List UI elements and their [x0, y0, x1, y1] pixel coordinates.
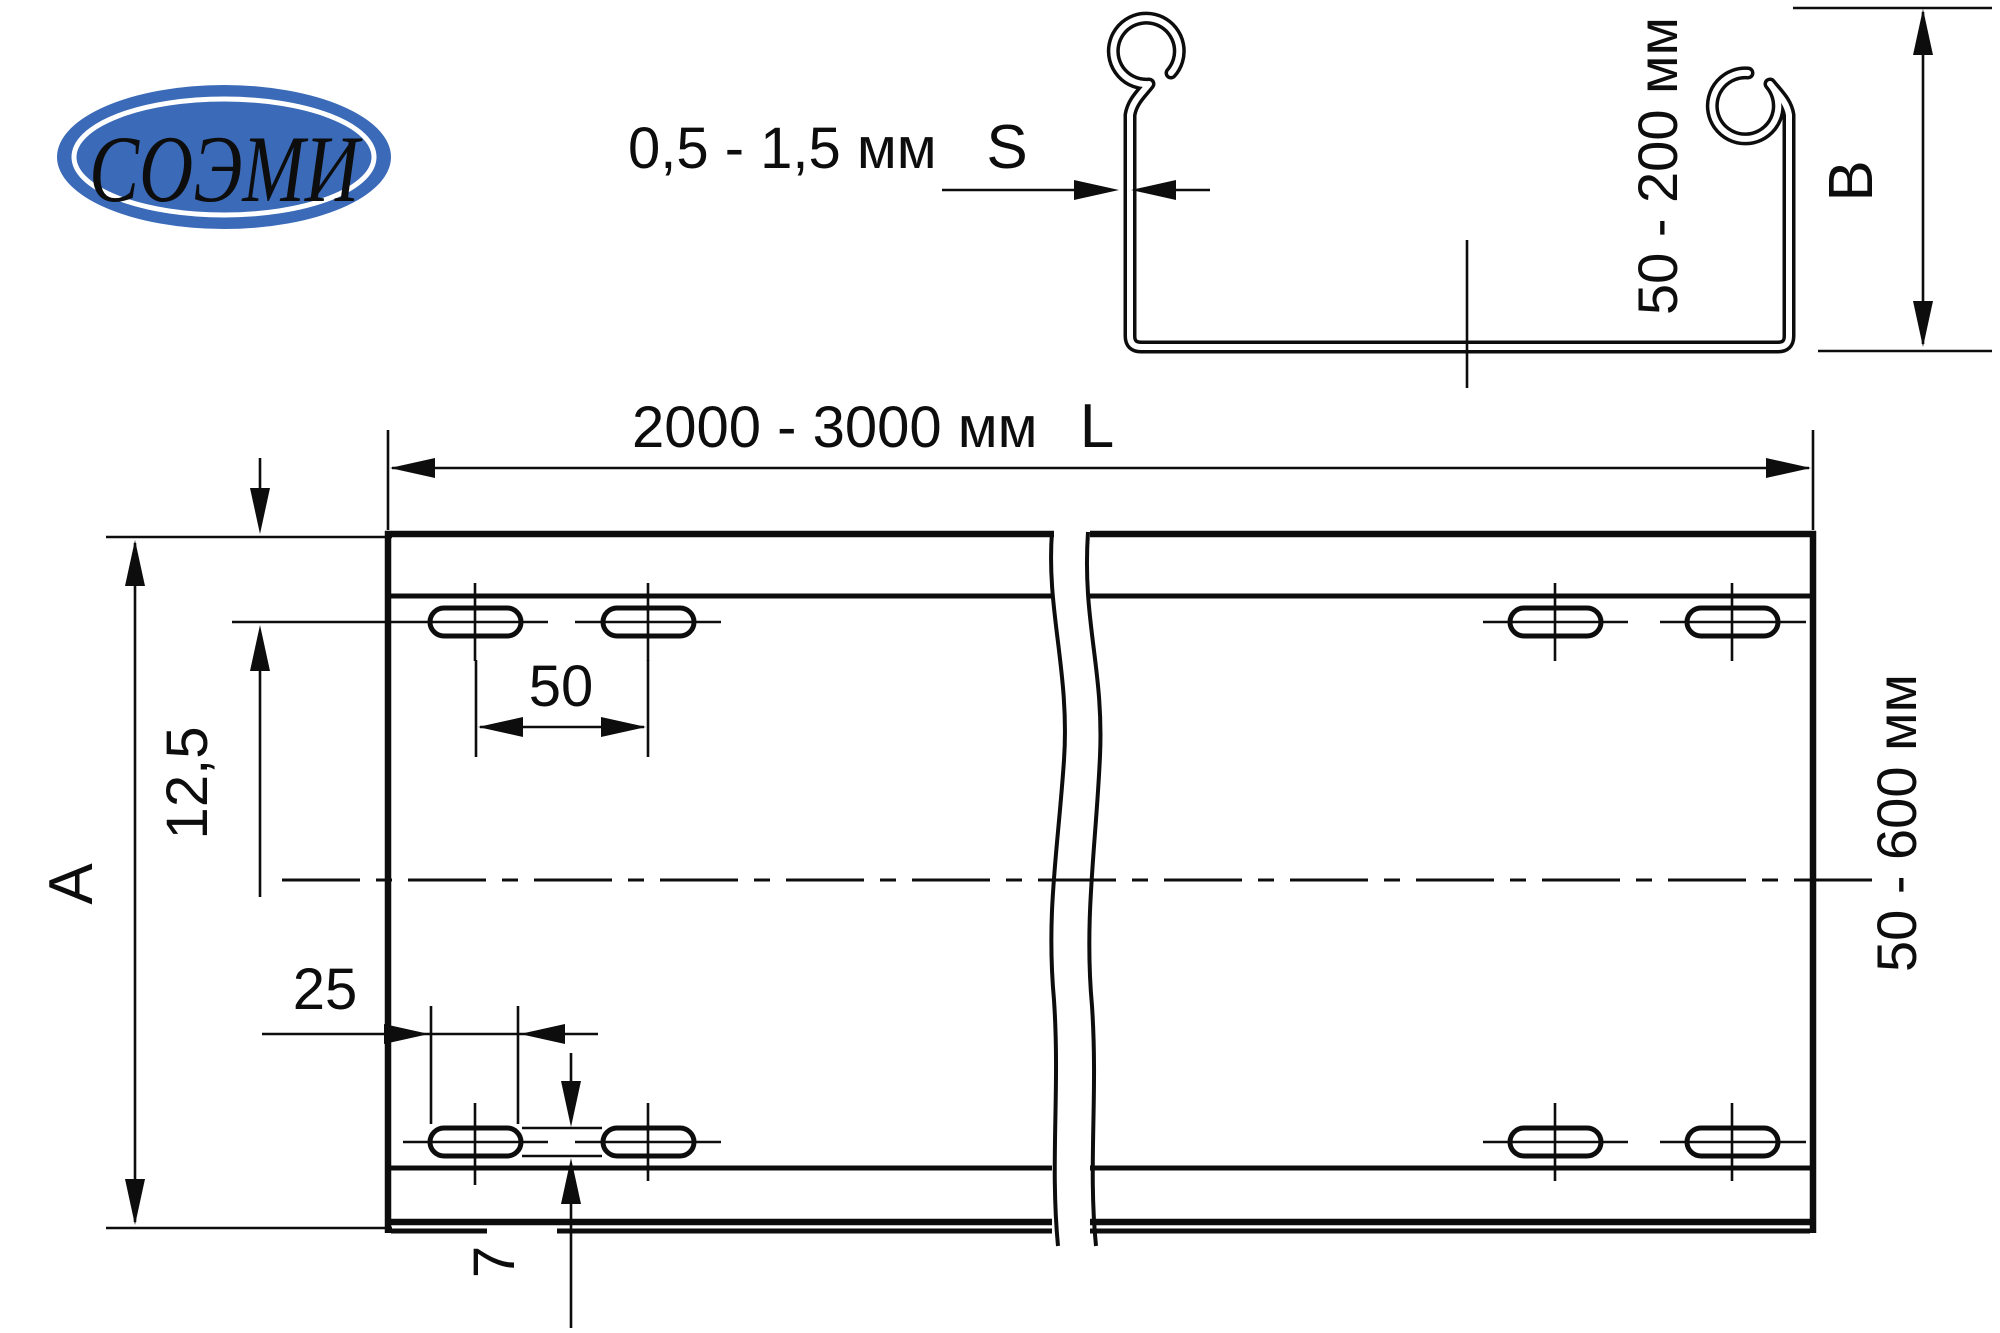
arrowhead-left — [1131, 180, 1176, 200]
dimension-slot-pitch: 50 — [476, 654, 648, 757]
dimension-section-height: 50 - 200 мм B — [1626, 8, 1992, 351]
break-line-right — [1087, 532, 1101, 1246]
arrowhead-left — [478, 717, 523, 737]
arrowhead-right — [1074, 180, 1119, 200]
arrowhead-down — [561, 1081, 581, 1127]
plan-view: 2000 - 3000 мм L A 12,5 50 — [37, 392, 1928, 1328]
company-logo: СОЭМИ — [57, 85, 391, 229]
arrowhead-right — [601, 717, 646, 737]
width-symbol-label: A — [37, 863, 106, 905]
arrowhead-up — [1913, 9, 1933, 55]
slot-length-label: 25 — [293, 957, 358, 1022]
dimension-thickness: 0,5 - 1,5 мм S — [628, 113, 1210, 200]
dimension-length: 2000 - 3000 мм L — [388, 392, 1813, 530]
dimension-width-A: A — [37, 537, 392, 1228]
arrowhead-left — [520, 1024, 565, 1044]
arrowhead-left — [390, 458, 435, 478]
arrowhead-down — [250, 488, 270, 534]
arrowhead-right — [1766, 458, 1811, 478]
dimension-edge-to-slots: 12,5 — [155, 458, 270, 897]
arrowhead-right — [384, 1024, 429, 1044]
arrowhead-up — [561, 1158, 581, 1204]
break-line-left — [1051, 532, 1065, 1246]
slot-width-label: 7 — [462, 1246, 527, 1278]
length-range-label: 2000 - 3000 мм — [632, 395, 1037, 460]
width-range-label: 50 - 600 мм — [1865, 674, 1928, 972]
arrowhead-down — [125, 1179, 145, 1225]
cross-section-view: 0,5 - 1,5 мм S 50 - 200 мм B — [628, 8, 1992, 388]
dimension-slot-length: 25 — [262, 957, 598, 1124]
slot-row-bottom — [403, 1103, 1806, 1185]
slot-pitch-label: 50 — [529, 654, 594, 719]
section-height-range-label: 50 - 200 мм — [1626, 17, 1689, 315]
dimension-slot-width: 7 — [462, 1053, 602, 1328]
arrowhead-up — [125, 540, 145, 586]
break-lines — [1051, 532, 1100, 1246]
thickness-symbol-label: S — [986, 113, 1027, 182]
arrowhead-down — [1913, 301, 1933, 347]
length-symbol-label: L — [1080, 392, 1114, 461]
technical-drawing: СОЭМИ 0,5 - 1,5 мм S 50 - 200 мм B — [0, 0, 2000, 1333]
edge-to-slots-label: 12,5 — [155, 727, 220, 840]
section-height-symbol-label: B — [1817, 160, 1886, 201]
logo-wordmark: СОЭМИ — [89, 116, 362, 222]
arrowhead-up — [250, 625, 270, 671]
drawing-page: СОЭМИ 0,5 - 1,5 мм S 50 - 200 мм B — [0, 0, 2000, 1333]
thickness-range-label: 0,5 - 1,5 мм — [628, 116, 937, 181]
